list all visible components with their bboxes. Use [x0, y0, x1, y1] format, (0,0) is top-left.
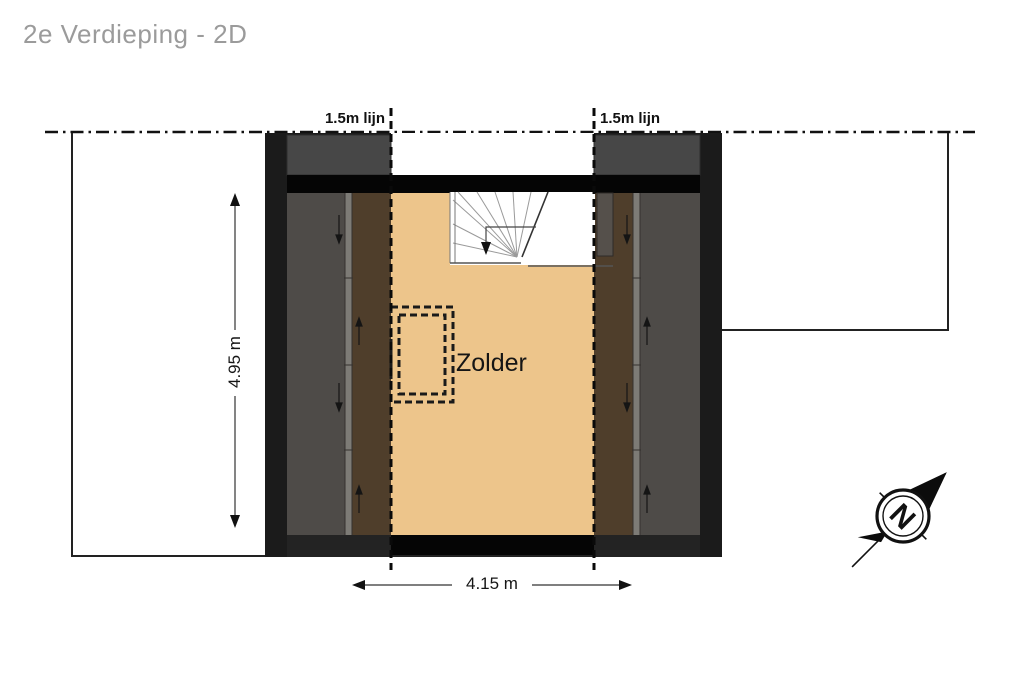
page-title: 2e Verdieping - 2D	[23, 19, 247, 50]
compass-rose: N	[829, 449, 970, 590]
stair-void	[391, 133, 594, 175]
roof-overhang-left	[287, 135, 391, 175]
floor-plan-page: N 2e Verdieping - 2D 1.5m lijn 1.5m lijn…	[0, 0, 1024, 683]
roof-plane-left	[287, 193, 345, 535]
dimension-width-label: 4.15 m	[441, 574, 543, 594]
room-label: Zolder	[456, 349, 527, 378]
bottom-wall-band	[391, 535, 594, 555]
height-line-right-label: 1.5m lijn	[600, 110, 680, 127]
roof-plane-right	[640, 193, 700, 535]
low-headroom-left	[352, 193, 391, 535]
neighbor-outline-right	[722, 133, 948, 330]
top-wall-band	[287, 175, 700, 193]
neighbor-outline-left	[72, 133, 287, 556]
height-line-left-label: 1.5m lijn	[305, 110, 385, 127]
roof-overhang-right	[594, 135, 700, 175]
stairwell	[450, 192, 613, 266]
roof-window-strip-left	[345, 193, 352, 535]
dimension-height-label: 4.95 m	[225, 331, 245, 393]
chimney-dashed-box	[391, 307, 453, 402]
stair-balustrade-block	[597, 193, 613, 256]
roof-window-strip-right	[633, 193, 640, 535]
